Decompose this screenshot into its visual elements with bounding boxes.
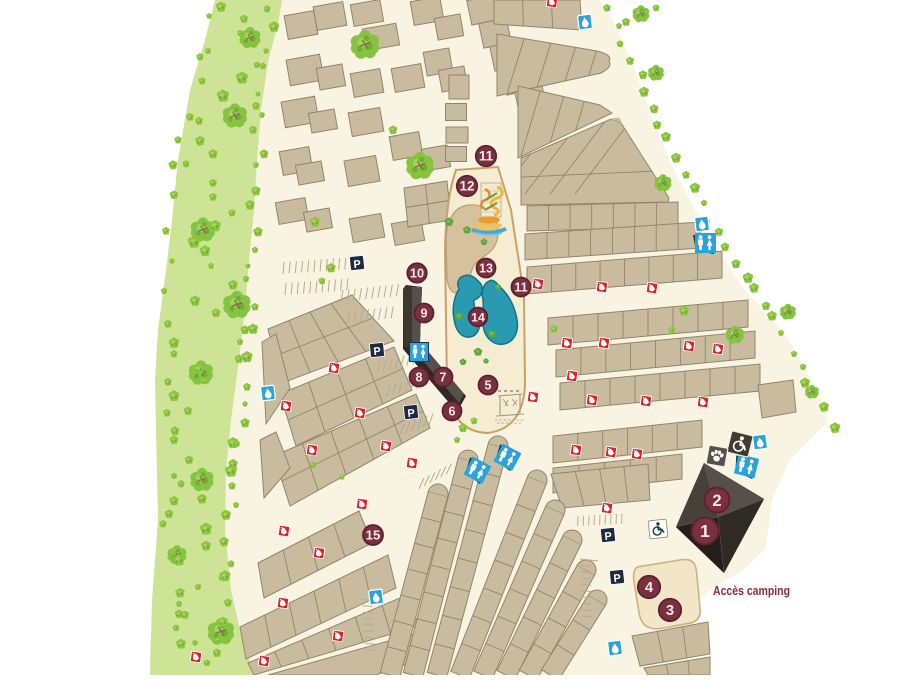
svg-text:2: 2 <box>712 492 721 510</box>
svg-text:4: 4 <box>645 580 654 596</box>
svg-text:8: 8 <box>416 370 423 384</box>
svg-text:5: 5 <box>485 378 492 392</box>
svg-text:1: 1 <box>700 521 710 541</box>
svg-text:Accès camping: Accès camping <box>713 583 790 598</box>
svg-text:11: 11 <box>479 149 494 164</box>
svg-text:9: 9 <box>421 306 428 320</box>
svg-text:10: 10 <box>410 265 424 280</box>
svg-text:7: 7 <box>440 370 447 384</box>
svg-text:15: 15 <box>366 528 381 543</box>
svg-text:12: 12 <box>459 179 474 194</box>
svg-text:3: 3 <box>666 603 674 619</box>
svg-text:6: 6 <box>449 404 456 418</box>
svg-text:13: 13 <box>479 261 493 275</box>
svg-text:11: 11 <box>514 280 527 294</box>
svg-text:14: 14 <box>471 310 485 324</box>
